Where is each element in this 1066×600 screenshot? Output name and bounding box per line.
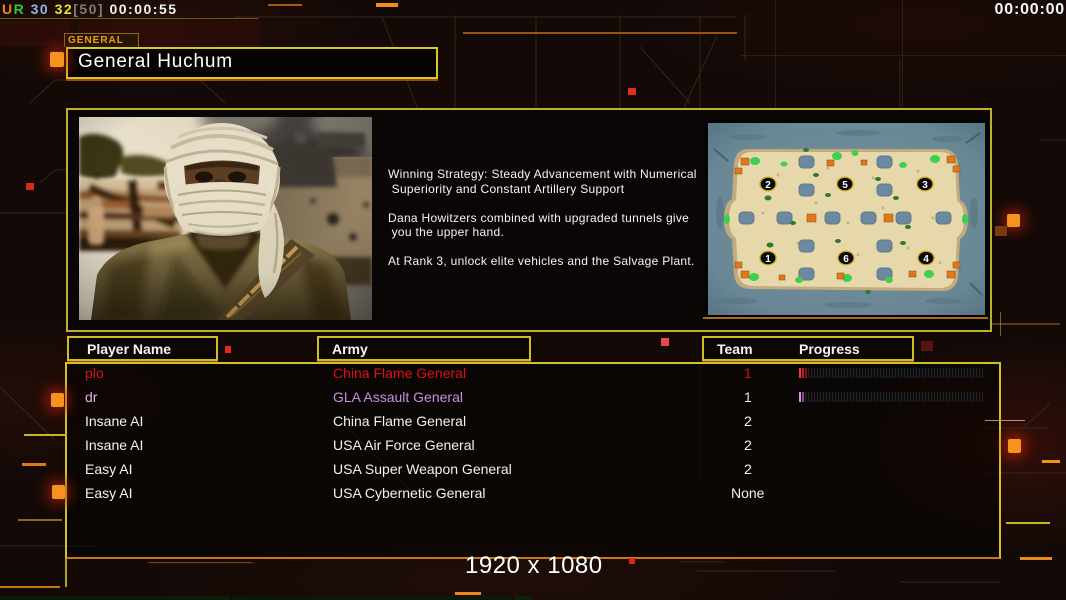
- svg-text:6: 6: [843, 254, 849, 265]
- svg-text:5: 5: [842, 180, 848, 191]
- svg-text:4: 4: [923, 254, 929, 265]
- svg-text:3: 3: [922, 180, 928, 191]
- svg-text:2: 2: [765, 180, 771, 191]
- svg-text:1: 1: [765, 254, 771, 265]
